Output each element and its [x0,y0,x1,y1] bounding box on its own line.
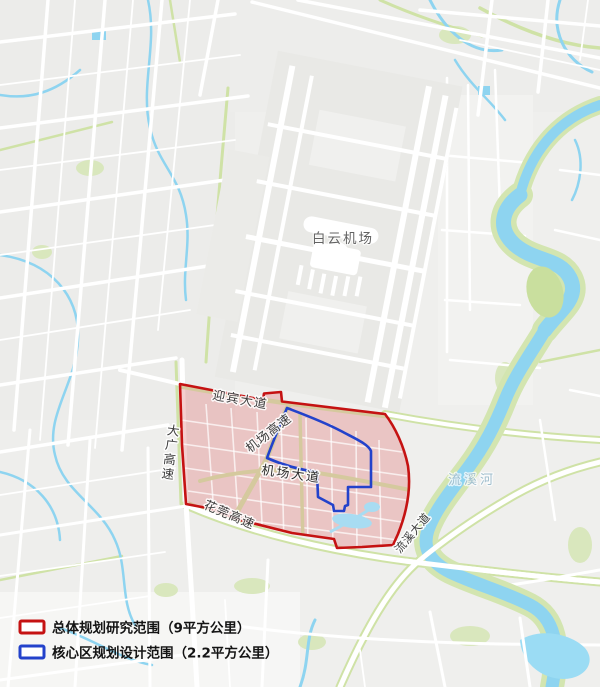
legend-label-overall: 总体规划研究范围（9平方公里） [52,620,250,637]
legend-swatch-core [20,646,44,658]
legend-item-overall: 总体规划研究范围（9平方公里） [20,620,250,637]
airport-label: 白云机场 [312,231,374,247]
legend-swatch-overall [20,621,44,633]
legend-item-core: 核心区规划设计范围（2.2平方公里） [20,645,278,662]
planning-map: 白云机场 流溪河 迎宾大道 大广高速 机场高速 机场大道 花莞高速 流溪大道 总… [0,0,600,687]
legend-label-core: 核心区规划设计范围（2.2平方公里） [52,645,278,662]
river-label: 流溪河 [448,473,496,488]
map-viewport[interactable]: 白云机场 流溪河 迎宾大道 大广高速 机场高速 机场大道 花莞高速 流溪大道 总… [0,0,600,687]
